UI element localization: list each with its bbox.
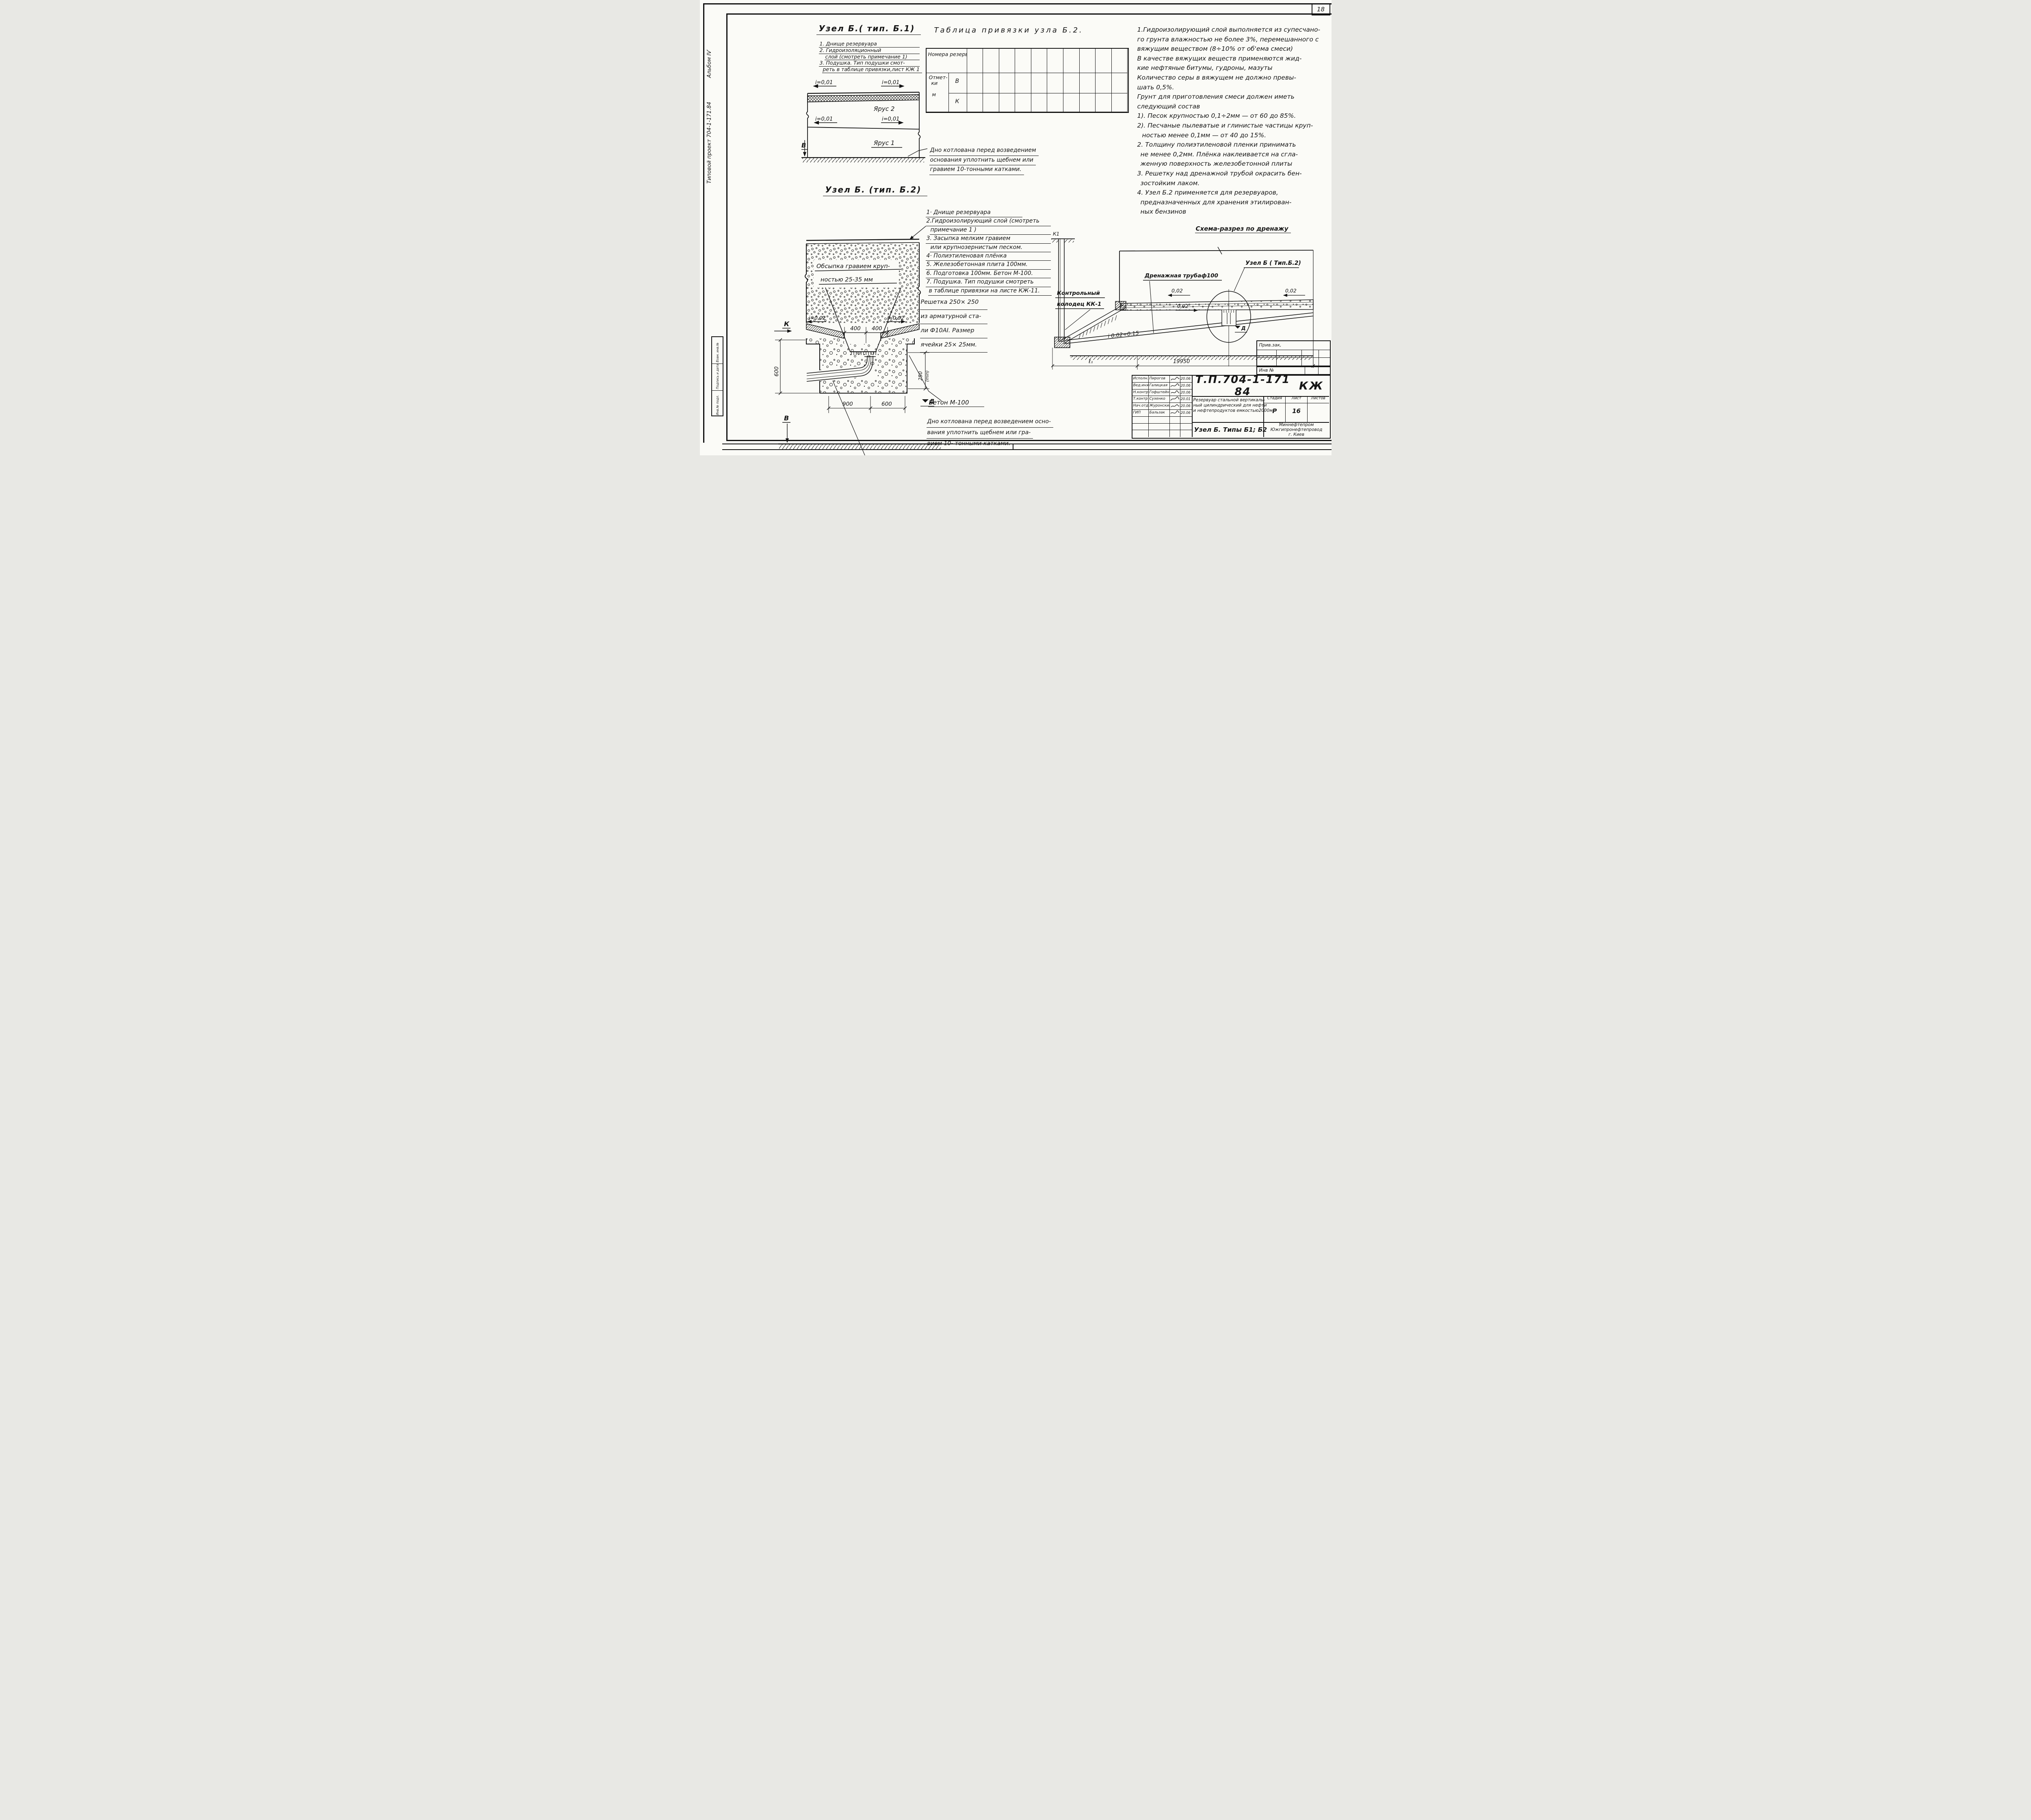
table-cell	[983, 93, 999, 112]
doc-code: КЖ	[1294, 380, 1329, 392]
table-cell	[1047, 93, 1063, 112]
table-cell	[1080, 49, 1096, 73]
person-name: Журонский	[1149, 403, 1170, 410]
empty-cell	[1170, 424, 1180, 431]
schema-well-tag: К1	[1053, 231, 1059, 237]
schema-pipe-slope: i 0.02÷0.15	[1107, 330, 1139, 340]
binding-table-rowlabel: Отмет- ки м	[927, 73, 949, 112]
b2-list-line: 1· Днище резервуара	[926, 209, 1022, 217]
schema-dim-e1: ℓ₁	[1088, 359, 1093, 365]
table-cell	[1047, 49, 1063, 73]
b1-note-line: слой (смотреть примечание 1)	[825, 54, 920, 61]
approve-header: Прив.зак,	[1257, 341, 1330, 350]
signature	[1170, 383, 1180, 390]
note-line: женную поверхность железобетонной плиты	[1137, 159, 1329, 169]
schema-node-label: Узел Б ( Тип.Б.2)	[1245, 260, 1301, 266]
margin-album-label: Альбом ІѴ	[706, 50, 712, 78]
b2-list-line: 6. Подготовка 100мм. Бетон М-100.	[926, 270, 1051, 278]
project-band: Резервуар стальной вертикаль- ный цилинд…	[1192, 396, 1329, 423]
b2-exc-line: вием 10- тонными катками.	[927, 439, 1013, 450]
note-line: вяжущим веществом (8÷10% от об'ема смеси…	[1137, 44, 1329, 54]
b1-notes: 1. Днище резервуара 2. Гидроизоляционный…	[819, 41, 922, 73]
note-line: 4. Узел Б.2 применяется для резервуаров,	[1137, 188, 1329, 198]
signature	[1170, 403, 1180, 410]
approve-cell	[1319, 350, 1330, 358]
empty-cell	[1180, 430, 1192, 437]
b1-slope-mid-left: i=0,01	[815, 116, 833, 122]
general-notes: 1.Гидроизолирующий слой выполняется из с…	[1137, 25, 1329, 217]
sign-date: 20.06	[1180, 410, 1192, 417]
note-line: В качестве вяжущих веществ применяются ж…	[1137, 54, 1329, 64]
table-cell	[1096, 93, 1112, 112]
b2-list-line: 5. Железобетонная плита 100мм.	[926, 261, 1051, 269]
org-line: Миннефтепром	[1264, 422, 1329, 427]
note-line: предназначенных для хранения этилирован-	[1137, 198, 1329, 208]
schema-dim-total: 19950	[1173, 359, 1190, 365]
person-name: Гофштейн	[1149, 390, 1170, 396]
table-cell	[999, 93, 1015, 112]
b1-section-drawing: i=0,01 i=0,01 Ярус 2 i=0,01 i=0,01 Ярус …	[801, 75, 928, 173]
person-name: Сухенко	[1149, 396, 1170, 403]
doc-number: Т.П.704-1-171 84	[1192, 374, 1294, 398]
note-line: следующий состав	[1137, 102, 1329, 112]
b2-title: Узел Б. (тип. Б.2)	[823, 185, 927, 196]
rowlabel-unit: м	[929, 91, 936, 97]
b2-slope-left: i=0,02	[809, 315, 826, 321]
grate-line: ли Ф10АІ. Размер	[920, 324, 987, 338]
b2-marker-v: В	[784, 414, 789, 422]
person-name: Бальзак	[1149, 410, 1170, 417]
signature	[1170, 410, 1180, 417]
listov-value	[1308, 403, 1329, 422]
signature	[1170, 390, 1180, 396]
margin-stamps: Взам. инв.№ Подпись и дата Инв.№ подл.	[711, 336, 723, 416]
table-cell	[1112, 49, 1128, 73]
b2-list-line: в таблице привязки на листе КЖ-11.	[928, 287, 1052, 296]
list-value: 16	[1286, 403, 1308, 422]
table-cell	[967, 73, 983, 93]
b2-dim-600v: 600	[774, 366, 780, 377]
table-cell	[999, 49, 1015, 73]
b2-slope-right: i=0,02	[887, 315, 904, 321]
margin-vertical-title: Типовой проект 704-1-171.84 Альбом ІѴ	[706, 50, 712, 184]
schema-slope-3: 0,02	[1285, 288, 1297, 294]
table-cell	[999, 73, 1015, 93]
b1-tier1-label: Ярус 1	[873, 139, 894, 147]
b2-gravel-label-2: ностью 25-35 мм	[821, 277, 873, 283]
rowlabel-2: ки	[929, 80, 938, 86]
org-line: Южгипронефтепровод	[1264, 427, 1329, 432]
b2-marker-k: К	[784, 320, 790, 328]
empty-cell	[1170, 417, 1180, 424]
table-cell	[983, 73, 999, 93]
listov-header: Листов	[1308, 396, 1329, 403]
sign-date: 20.06	[1180, 383, 1192, 390]
table-cell	[1080, 93, 1096, 112]
empty-cell	[1132, 424, 1149, 431]
empty-cell	[1180, 424, 1192, 431]
sheet-name-band: Узел Б. Типы Б1; Б2 Миннефтепром Южгипро…	[1192, 422, 1329, 437]
empty-cell	[1170, 430, 1180, 437]
note-line: кие нефтяные битумы, гудроны, мазуты	[1137, 63, 1329, 73]
schema-slope-2: 0,02	[1177, 303, 1189, 309]
sign-date: 20.01	[1180, 396, 1192, 403]
b1-note-line: реть в таблице привязки,лист КЖ 1	[822, 67, 922, 73]
binding-table-corner: Номера резервуаров	[927, 49, 967, 73]
stamp-inv-podl: Инв.№ подл.	[716, 395, 719, 415]
sign-date: 20.06	[1180, 390, 1192, 396]
b1-slope-mid-right: i=0,01	[882, 116, 899, 122]
b2-exc-line: вания уплотнить щебнем или гра-	[927, 428, 1033, 439]
note-line: Грунт для приготовления смеси должен име…	[1137, 92, 1329, 102]
binding-table: Номера резервуаров Отмет- ки м В К	[926, 48, 1129, 113]
schema-pipe-label: Дренажная трубаф100	[1144, 273, 1218, 279]
b2-list-line: примечание 1 )	[930, 226, 1051, 235]
b2-exc-line: Дно котлована перед возведением осно-	[927, 417, 1054, 428]
margin-project-label: Типовой проект 704-1-171.84	[706, 102, 712, 184]
note-line: го грунта влажностью не более 3%, переме…	[1137, 35, 1329, 45]
sheet-edge-left	[703, 3, 704, 443]
sheet-edge-top	[703, 3, 1332, 4]
sign-date: 20.06	[1180, 403, 1192, 410]
b2-list-line: 3. Засыпка мелким гравием	[926, 235, 1051, 243]
b1-title: Узел Б.( тип. Б.1)	[816, 24, 921, 35]
personnel-table: Исполн. Пирогов 20.06 Вед.инж Галицкая 2…	[1132, 376, 1193, 437]
table-cell	[1031, 49, 1048, 73]
approve-cell	[1257, 358, 1277, 366]
table-cell	[967, 49, 983, 73]
note-line: зостойким лаком.	[1137, 179, 1329, 188]
b1-marker-b: В	[801, 142, 806, 149]
grate-line: Решетка 250× 250	[920, 296, 987, 310]
page-number: 18	[1317, 6, 1325, 13]
b2-dim-400-right: 400	[872, 325, 882, 332]
b2-list: 1· Днище резервуара 2.Гидроизолирующий с…	[926, 209, 1052, 296]
table-cell	[1015, 49, 1031, 73]
binding-table-sub-k: К	[949, 93, 967, 112]
role: Исполн.	[1132, 376, 1149, 383]
page-number-box: 18	[1312, 3, 1330, 15]
table-cell	[1015, 73, 1031, 93]
empty-cell	[1132, 430, 1149, 437]
role: Нач.отд	[1132, 403, 1149, 410]
schema-marker-d: Д	[1241, 325, 1246, 331]
table-cell	[967, 93, 983, 112]
b1-exc-line: гравием 10-тонными катками.	[929, 165, 1024, 175]
empty-cell	[1149, 430, 1170, 437]
table-cell	[1047, 73, 1063, 93]
inv-divider	[1318, 367, 1330, 374]
grate-line: из арматурной ста-	[920, 310, 987, 324]
schema-well-label-1: Контрольный	[1057, 290, 1100, 296]
binding-table-title: Таблица привязки узла Б.2.	[934, 26, 1083, 35]
note-line: ностью менее 0,1мм — от 40 до 15%.	[1137, 131, 1329, 141]
title-block: Исполн. Пирогов 20.06 Вед.инж Галицкая 2…	[1132, 375, 1331, 439]
note-line: Количество серы в вяжущем не должно прев…	[1137, 73, 1329, 83]
b2-dim-250-min: (min)	[925, 370, 930, 382]
approve-cell	[1319, 358, 1330, 366]
project-name: Резервуар стальной вертикаль- ный цилинд…	[1192, 396, 1264, 422]
note-line: 2. Толщину полиэтиленовой пленки принима…	[1137, 140, 1329, 150]
binding-table-sub-b: В	[949, 73, 967, 93]
note-line: 1.Гидроизолирующий слой выполняется из с…	[1137, 25, 1329, 35]
project-line: Резервуар стальной вертикаль-	[1193, 398, 1262, 403]
stamp-vzam-inv: Взам. инв.№	[716, 342, 719, 362]
empty-cell	[1180, 417, 1192, 424]
b2-list-line: 2.Гидроизолирующий слой (смотреть	[926, 217, 1051, 226]
inv-divider	[1305, 367, 1318, 374]
note-line: ных бензинов	[1137, 207, 1329, 217]
b2-excavation-note: Дно котлована перед возведением осно- ва…	[927, 417, 1054, 450]
table-cell	[1112, 93, 1128, 112]
b1-tier2-label: Ярус 2	[873, 105, 894, 113]
note-line: 3. Решетку над дренажной трубой окрасить…	[1137, 169, 1329, 179]
table-cell	[1063, 93, 1080, 112]
blueprint-sheet: 18 Типовой проект 704-1-171.84 Альбом ІѴ…	[700, 0, 1332, 455]
signature	[1170, 376, 1180, 383]
b1-slope-top-left: i=0,01	[815, 80, 833, 86]
org-line: г. Киев	[1264, 432, 1329, 437]
b1-slope-top-right: i=0,01	[882, 80, 899, 86]
rowlabel-1: Отмет-	[929, 74, 948, 80]
stage-value: Р	[1264, 403, 1286, 422]
approve-cell	[1257, 350, 1277, 358]
b1-note-line: 2. Гидроизоляционный	[819, 48, 920, 54]
b1-note-line: 3. Подушка. Тип подушки смот-	[819, 60, 920, 67]
note-line: не менее 0,2мм. Плёнка наклеивается на с…	[1137, 150, 1329, 160]
schema-slope-1: 0,02	[1171, 288, 1183, 294]
b1-excavation-note: Дно котлована перед возведением основани…	[929, 146, 1039, 175]
b2-grate-label: Решетка 250× 250 из арматурной ста- ли Ф…	[920, 296, 987, 353]
note-line: шать 0,5%.	[1137, 83, 1329, 93]
signature	[1170, 396, 1180, 403]
b2-dim-400-left: 400	[850, 325, 861, 332]
table-cell	[1015, 93, 1031, 112]
approve-cell	[1277, 358, 1302, 366]
concrete-line: Бетон М-100	[928, 399, 984, 407]
approve-cell	[1302, 358, 1319, 366]
approve-cell	[1302, 350, 1319, 358]
b2-gravel-label-1: Обсыпка гравием круп-	[816, 263, 890, 270]
note-line: 2). Песчаные пылеватые и глинистые части…	[1137, 121, 1329, 131]
approve-cell	[1277, 350, 1302, 358]
sign-date: 20.06	[1180, 376, 1192, 383]
project-line: и нефтепродуктов емкостью2000м³	[1193, 408, 1262, 413]
role: ГИП	[1132, 410, 1149, 417]
empty-cell	[1149, 424, 1170, 431]
b2-list-line: или крупнозернистым песком.	[930, 244, 1051, 252]
sheet-name: Узел Б. Типы Б1; Б2	[1192, 422, 1264, 437]
doc-number-band: Т.П.704-1-171 84 КЖ	[1192, 376, 1329, 397]
approve-table: Прив.зак,	[1256, 340, 1331, 366]
project-line: ный цилиндрический для нефти	[1193, 403, 1262, 408]
table-cell	[1096, 49, 1112, 73]
list-header: Лист	[1286, 396, 1308, 403]
role: Н.контр	[1132, 390, 1149, 396]
table-cell	[983, 49, 999, 73]
grate-line: ячейки 25× 25мм.	[920, 338, 987, 353]
empty-cell	[1149, 417, 1170, 424]
b2-concrete-label: Бетон М-100	[928, 399, 984, 407]
role: Вед.инж	[1132, 383, 1149, 390]
b2-list-line: 7. Подушка. Тип подушки смотреть	[926, 278, 1051, 287]
table-cell	[1031, 73, 1048, 93]
b2-list-line: 4· Полиэтиленовая плёнка	[926, 252, 1051, 261]
b1-exc-line: Дно котлована перед возведением	[929, 146, 1039, 156]
inv-label: Инв №	[1257, 367, 1305, 374]
b2-section-drawing: Обсыпка гравием круп- ностью 25-35 мм 40…	[767, 221, 944, 455]
note-line: 1). Песок крупностью 0,1÷2мм — от 60 до …	[1137, 111, 1329, 121]
stage-header: Стадия	[1264, 396, 1286, 403]
schema-well-label-2: колодец КК-1	[1057, 301, 1101, 307]
b1-note-line: 1. Днище резервуара	[819, 41, 920, 48]
role: Т.контр	[1132, 396, 1149, 403]
table-cell	[1112, 73, 1128, 93]
person-name: Пирогов	[1149, 376, 1170, 383]
empty-cell	[1132, 417, 1149, 424]
stamp-podpis-data: Подпись и дата	[716, 364, 719, 389]
b2-dim-600h: 600	[881, 401, 892, 407]
table-cell	[1063, 49, 1080, 73]
person-name: Галицкая	[1149, 383, 1170, 390]
table-cell	[1080, 73, 1096, 93]
b1-exc-line: основания уплотнить щебнем или	[929, 156, 1036, 166]
table-cell	[1031, 93, 1048, 112]
table-cell	[1096, 73, 1112, 93]
table-cell	[1063, 73, 1080, 93]
